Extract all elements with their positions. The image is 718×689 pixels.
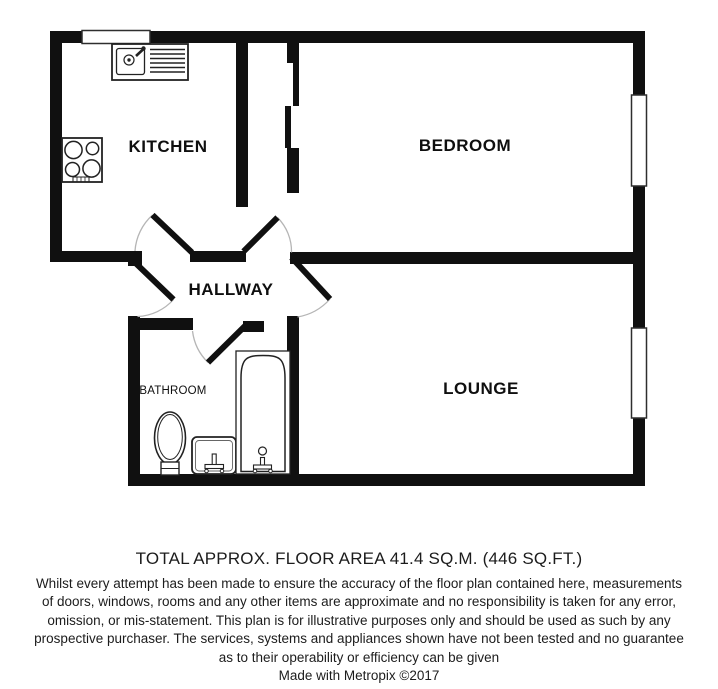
bedroom-window-icon bbox=[632, 95, 647, 186]
disclaimer-line: omission, or mis-statement. This plan is… bbox=[0, 612, 718, 630]
disclaimer-line: Whilst every attempt has been made to en… bbox=[0, 575, 718, 593]
room-label-lounge: LOUNGE bbox=[401, 379, 561, 399]
bathtub-tap-bar bbox=[254, 465, 272, 469]
kitchen-door-arc-icon bbox=[135, 215, 153, 251]
wall-bathroom-left bbox=[128, 316, 140, 486]
windows bbox=[82, 31, 647, 419]
sink-drain-dot bbox=[127, 58, 130, 61]
hob-burner bbox=[65, 141, 82, 158]
disclaimer-line: of doors, windows, rooms and any other i… bbox=[0, 593, 718, 611]
floor-plan-page: KITCHEN BEDROOM HALLWAY BATHROOM LOUNGE … bbox=[0, 0, 718, 689]
walls bbox=[50, 31, 645, 486]
basin-icon bbox=[192, 437, 236, 474]
wall-bedroom-left-d bbox=[287, 148, 299, 193]
metropix-credit-text: Made with Metropix ©2017 bbox=[0, 667, 718, 685]
bathroom-door-arc-icon bbox=[193, 331, 209, 363]
lounge-window-icon bbox=[632, 328, 647, 418]
entrance-door-arc-icon bbox=[138, 300, 174, 317]
kitchen-sink-icon bbox=[112, 44, 188, 80]
hob-burner bbox=[66, 163, 80, 177]
room-label-kitchen: KITCHEN bbox=[88, 137, 248, 157]
basin-tap-knob bbox=[205, 469, 209, 473]
wall-bathroom-top-left bbox=[128, 318, 193, 330]
disclaimer-line: prospective purchaser. The services, sys… bbox=[0, 630, 718, 648]
room-label-bedroom: BEDROOM bbox=[385, 136, 545, 156]
wall-bedroom-left-a bbox=[287, 43, 299, 63]
basin-tap-bar bbox=[205, 465, 224, 469]
bathtub-drain bbox=[259, 447, 267, 455]
lounge-door-arc-icon bbox=[298, 299, 331, 317]
bedroom-door-arc-icon bbox=[278, 218, 292, 253]
toilet-bowl-inner bbox=[158, 415, 183, 460]
toilet-icon bbox=[155, 412, 186, 475]
wall-left bbox=[50, 31, 62, 262]
total-floor-area-text: TOTAL APPROX. FLOOR AREA 41.4 SQ.M. (446… bbox=[0, 549, 718, 569]
room-label-hallway: HALLWAY bbox=[151, 280, 311, 300]
hob-burner bbox=[83, 160, 100, 177]
wall-bedroom-left-b bbox=[293, 63, 299, 106]
floor-plan-drawing bbox=[0, 0, 718, 520]
bedroom-door-leaf-icon bbox=[244, 218, 278, 252]
wall-bedroom-bottom bbox=[290, 252, 645, 264]
room-label-bathroom: BATHROOM bbox=[123, 385, 223, 397]
basin-tap-knob bbox=[220, 469, 224, 473]
wall-bottom bbox=[128, 474, 645, 486]
kitchen-door-leaf-icon bbox=[153, 215, 193, 253]
bathtub-tap-knob bbox=[253, 469, 257, 473]
wall-bedroom-left-c bbox=[285, 106, 291, 148]
sink-tap-head bbox=[141, 46, 145, 50]
bathtub-tap-knob bbox=[269, 469, 273, 473]
kitchen-window-icon bbox=[82, 31, 150, 44]
caption-block: TOTAL APPROX. FLOOR AREA 41.4 SQ.M. (446… bbox=[0, 549, 718, 685]
wall-kitchen-right bbox=[236, 43, 248, 207]
wall-kitchen-bottom-right bbox=[190, 251, 246, 262]
bathtub-icon bbox=[236, 351, 290, 474]
disclaimer-line: as to their operability or efficiency ca… bbox=[0, 649, 718, 667]
